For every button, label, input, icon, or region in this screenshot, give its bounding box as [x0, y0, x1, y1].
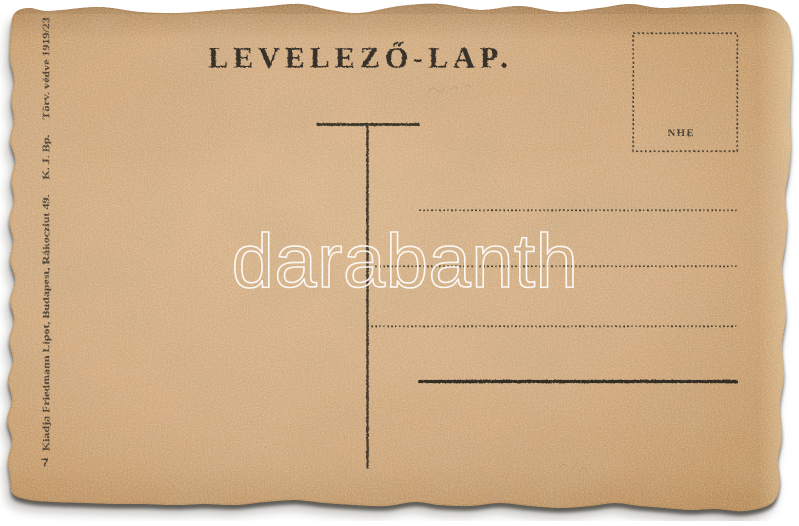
svg-text:NHE: NHE: [667, 127, 694, 139]
svg-text:Kiadja Friedmann Lipot, Budape: Kiadja Friedmann Lipot, Budapest, Rákocz…: [42, 17, 52, 451]
svg-text:LEVELEZŐ-LAP.: LEVELEZŐ-LAP.: [208, 41, 513, 74]
svg-text:darabanth: darabanth: [232, 219, 579, 304]
